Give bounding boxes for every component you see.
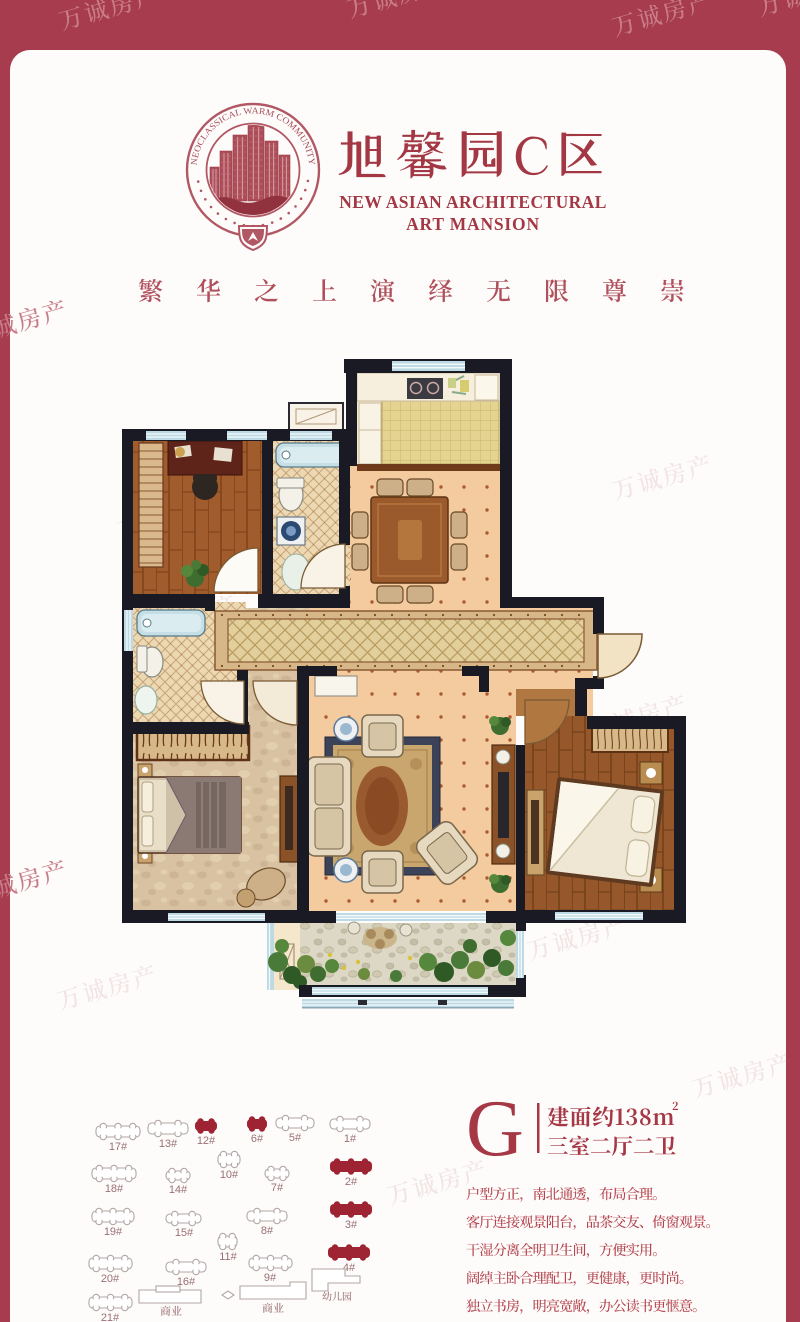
svg-text:13#: 13# — [159, 1138, 178, 1150]
svg-text:14#: 14# — [169, 1184, 188, 1196]
svg-text:19#: 19# — [104, 1226, 123, 1238]
svg-text:17#: 17# — [109, 1141, 128, 1153]
svg-text:20#: 20# — [101, 1273, 120, 1285]
svg-text:8#: 8# — [261, 1225, 274, 1237]
svg-text:6#: 6# — [251, 1133, 264, 1145]
svg-text:5#: 5# — [289, 1132, 302, 1144]
svg-text:11#: 11# — [219, 1251, 237, 1263]
svg-text:G: G — [466, 1085, 524, 1173]
svg-text:2#: 2# — [345, 1176, 358, 1188]
svg-text:3#: 3# — [345, 1219, 358, 1231]
svg-text:10#: 10# — [220, 1169, 239, 1181]
svg-text:12#: 12# — [197, 1135, 216, 1147]
svg-text:21#: 21# — [101, 1312, 120, 1322]
svg-text:9#: 9# — [264, 1272, 277, 1284]
svg-text:18#: 18# — [105, 1183, 124, 1195]
svg-text:1#: 1# — [344, 1133, 357, 1145]
svg-text:NEW ASIAN ARCHITECTURAL: NEW ASIAN ARCHITECTURAL — [339, 192, 607, 212]
svg-text:ART MANSION: ART MANSION — [406, 214, 540, 234]
svg-text:7#: 7# — [271, 1182, 284, 1194]
svg-text:15#: 15# — [175, 1227, 194, 1239]
